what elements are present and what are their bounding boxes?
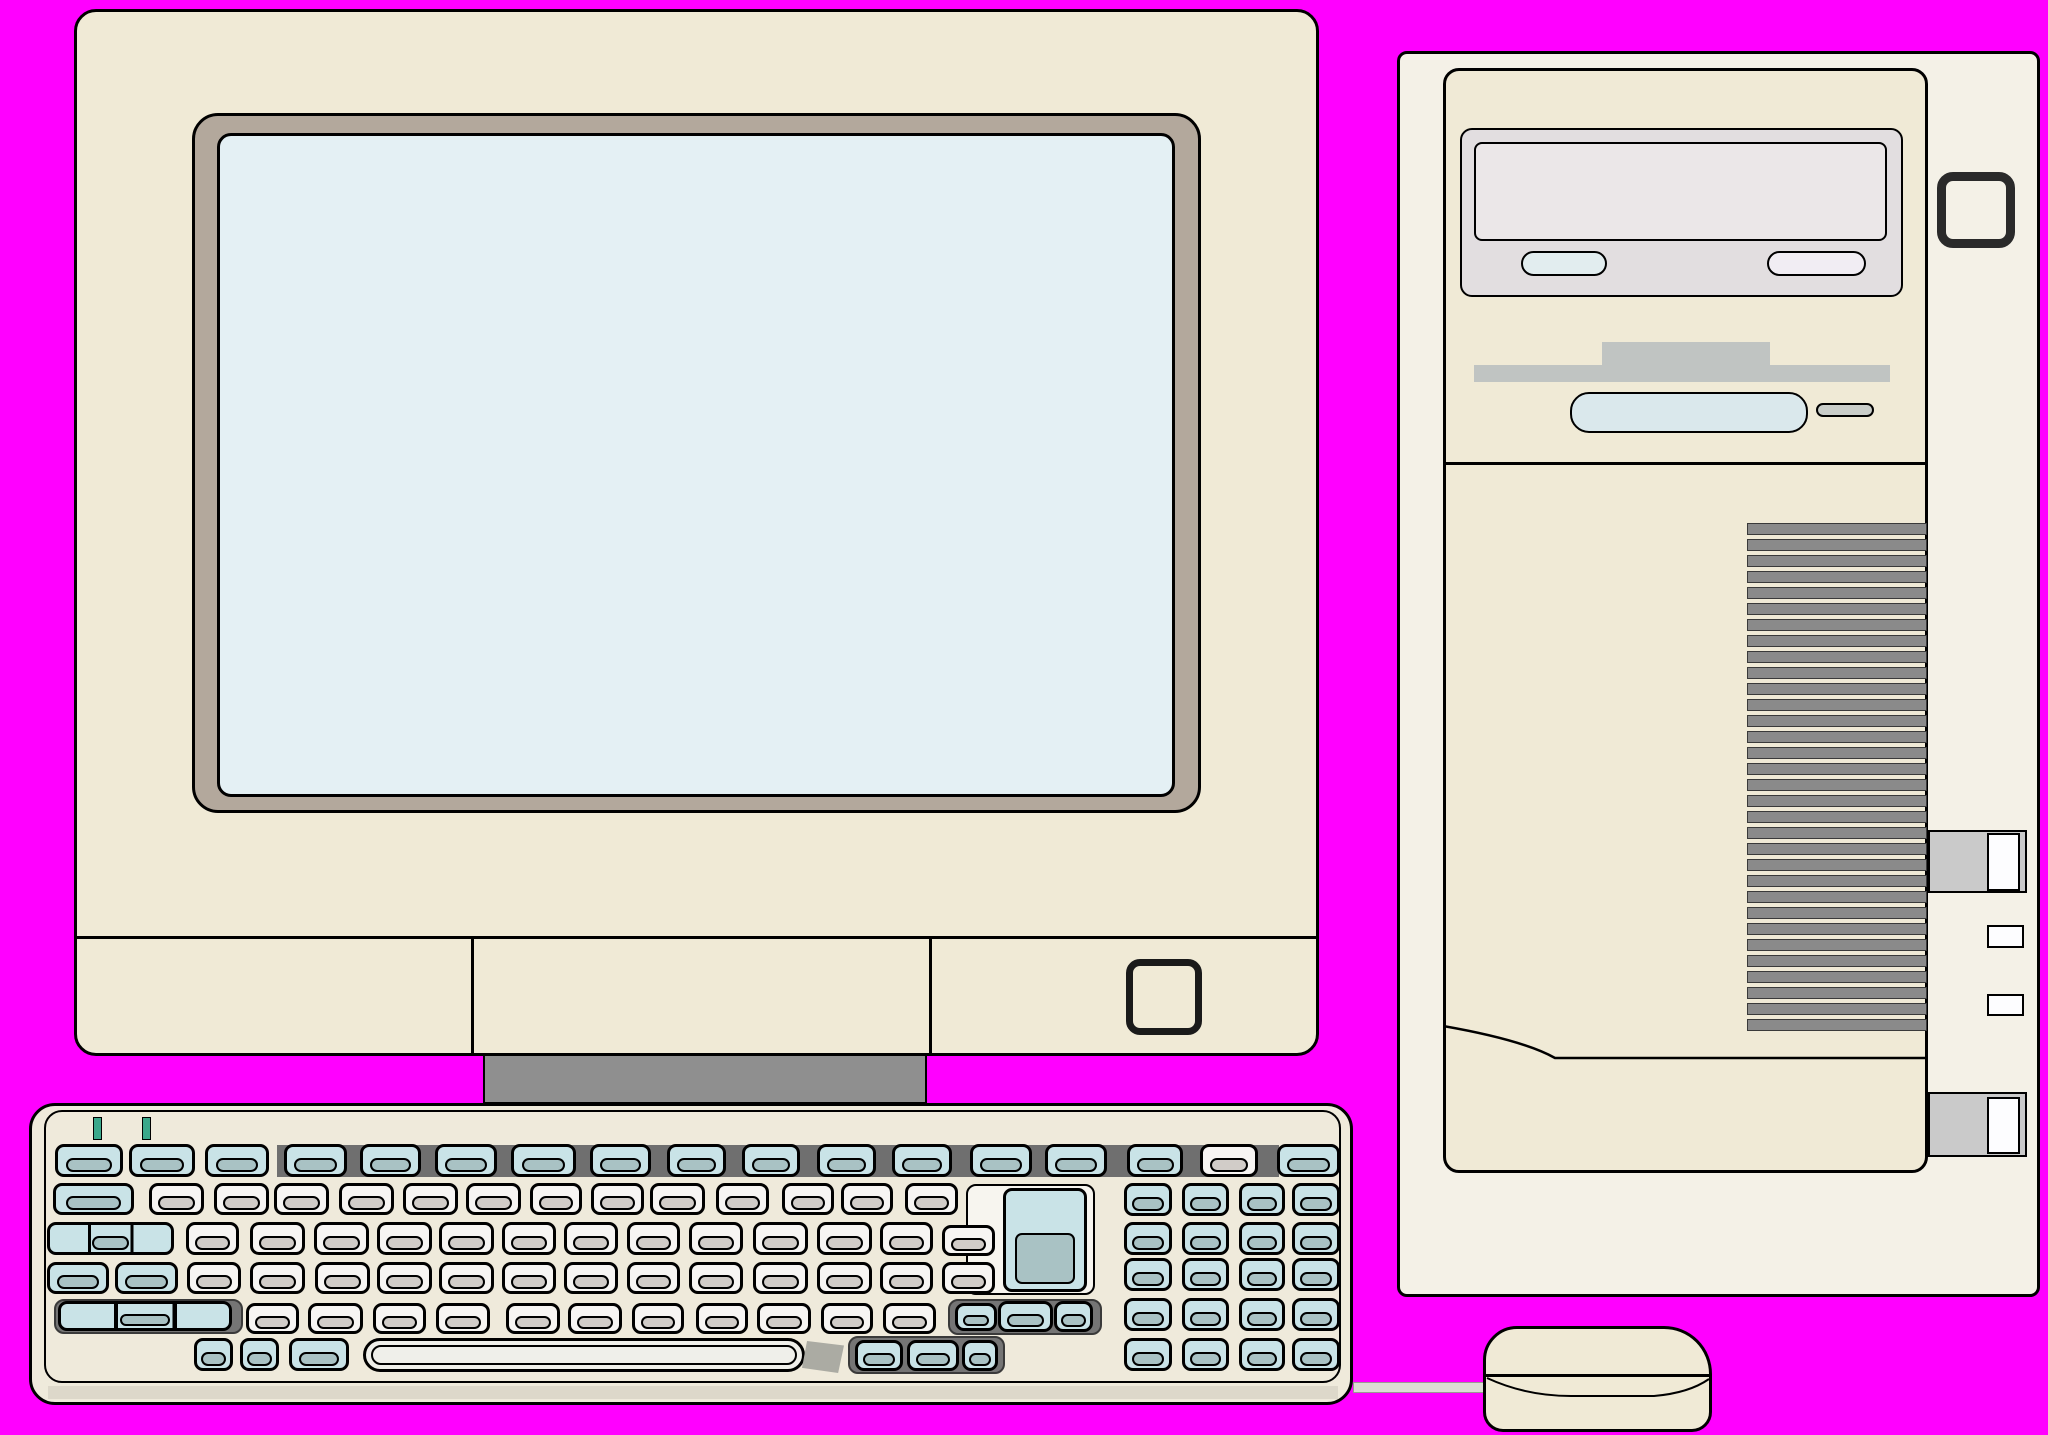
vent-slot [1747,779,1927,791]
keyboard-key[interactable] [782,1183,834,1215]
vent-slot [1747,907,1927,919]
tower-side-port-lower [1987,994,2024,1016]
keyboard-key[interactable] [47,1262,109,1294]
floppy-eject-button[interactable] [1816,403,1874,417]
keyboard-key[interactable] [149,1183,204,1215]
keyboard-key[interactable] [377,1262,432,1294]
keyboard-key[interactable] [194,1338,233,1371]
floppy-slot[interactable] [1570,392,1808,433]
tower-side-switch-upper-slot [1987,833,2020,891]
keyboard-key[interactable] [373,1303,426,1334]
cd-drive-tray[interactable] [1474,142,1887,241]
keyboard-key[interactable] [742,1144,800,1177]
tower-side-switch-lower-slot [1987,1097,2020,1154]
keyboard-key[interactable] [1124,1222,1172,1255]
vent-slot [1747,603,1927,615]
keyboard-key[interactable] [1292,1222,1340,1255]
keyboard-led [142,1117,151,1140]
keyboard-key[interactable] [1182,1298,1229,1331]
keyboard-key[interactable] [250,1222,305,1255]
keyboard-key[interactable] [377,1222,432,1255]
keyboard-key[interactable] [1292,1338,1340,1371]
tower-side-port-upper [1987,925,2024,948]
keyboard-key[interactable] [314,1222,369,1255]
keyboard-key[interactable] [115,1262,178,1294]
keyboard-key[interactable] [1124,1183,1172,1216]
vent-slot [1747,859,1927,871]
keyboard-key[interactable] [315,1262,370,1294]
keyboard-key[interactable] [308,1303,363,1334]
keyboard-key[interactable] [689,1262,743,1294]
vent-slot [1747,843,1927,855]
vent-slot [1747,939,1927,951]
keyboard-key[interactable] [696,1303,748,1334]
cd-eject-button[interactable] [1767,251,1866,276]
keyboard-key[interactable] [1239,1183,1285,1216]
keyboard-key[interactable] [757,1303,811,1334]
vent-slot [1747,651,1927,663]
vent-slot [1747,555,1927,567]
vent-slot [1747,587,1927,599]
vent-slot [1747,827,1927,839]
keyboard-key[interactable] [564,1262,618,1294]
keyboard-key[interactable] [1277,1144,1340,1177]
keyboard-key[interactable] [650,1183,705,1215]
vent-slot [1747,987,1927,999]
keyboard-key[interactable] [1239,1258,1285,1291]
keyboard-key[interactable] [942,1225,995,1256]
keyboard-key[interactable] [970,1144,1032,1177]
keyboard-key[interactable] [880,1262,933,1294]
vent-slot [1747,891,1927,903]
keyboard-key[interactable] [942,1262,995,1294]
mouse-cable [1353,1382,1486,1393]
keyboard-key[interactable] [205,1144,269,1177]
keyboard-key[interactable] [1239,1298,1285,1331]
vent-slot [1747,667,1927,679]
keyboard-key[interactable] [187,1262,241,1294]
keyboard-key[interactable] [1182,1258,1229,1291]
keyboard-key[interactable] [502,1222,556,1255]
keyboard-key[interactable] [1124,1338,1172,1371]
keyboard-key[interactable] [1182,1222,1229,1255]
keyboard-key[interactable] [817,1222,872,1255]
keyboard-key[interactable] [1124,1298,1172,1331]
keyboard-key[interactable] [250,1262,305,1294]
keyboard-key[interactable] [1292,1183,1340,1216]
keyboard-key[interactable] [1182,1338,1229,1371]
vent-slot [1747,619,1927,631]
vent-slot [1747,955,1927,967]
tower-panel-divider [1443,462,1928,465]
keyboard-key[interactable] [435,1144,497,1177]
tower-power-button[interactable] [1937,172,2015,248]
keyboard-key[interactable] [753,1262,808,1294]
keyboard-key[interactable] [360,1144,421,1177]
vent-slot [1747,699,1927,711]
vent-slot [1747,763,1927,775]
keyboard-key[interactable] [274,1183,329,1215]
floppy-drive-housing [1474,365,1890,382]
keyboard-key[interactable] [627,1262,680,1294]
monitor-screen [217,133,1175,797]
keyboard-key[interactable] [590,1144,651,1177]
keyboard-key[interactable] [186,1222,239,1255]
vent-slot [1747,923,1927,935]
keyboard-key[interactable] [632,1303,684,1334]
keyboard-key[interactable] [905,1183,958,1215]
keyboard-key[interactable] [1045,1144,1107,1177]
keyboard-key[interactable] [1124,1258,1172,1291]
cd-play-button[interactable] [1521,251,1607,276]
keyboard-key[interactable] [436,1303,490,1334]
keyboard-key[interactable] [1292,1298,1340,1331]
keyboard-key[interactable] [627,1222,680,1255]
monitor-control-strip-divider [74,936,1319,939]
keyboard-key[interactable] [1127,1144,1183,1177]
floppy-drive-housing-top [1602,342,1770,366]
keyboard-key[interactable] [289,1338,349,1371]
vent-slot [1747,731,1927,743]
keyboard-key[interactable] [998,1301,1053,1332]
vent-slot [1747,715,1927,727]
keyboard-key[interactable] [339,1183,394,1215]
keyboard-key[interactable] [55,1144,123,1177]
vent-slot [1747,523,1927,535]
vent-slot [1747,571,1927,583]
monitor-stand [483,1054,927,1104]
keyboard-key[interactable] [689,1222,743,1255]
keyboard-key[interactable] [47,1222,174,1255]
keyboard-key[interactable] [1054,1301,1093,1332]
scene [0,0,2048,1435]
keyboard-key[interactable] [841,1183,893,1215]
vent-slot [1747,747,1927,759]
keyboard-key[interactable] [214,1183,269,1215]
keyboard-key[interactable] [439,1262,494,1294]
keyboard-key[interactable] [564,1222,618,1255]
keyboard-key[interactable] [129,1144,195,1177]
keyboard-key[interactable] [1182,1183,1229,1216]
keyboard-key[interactable] [817,1262,872,1294]
keyboard-key[interactable] [1292,1258,1340,1291]
keyboard-key[interactable] [502,1262,556,1294]
keyboard-key[interactable] [58,1301,232,1331]
keyboard-key[interactable] [821,1303,873,1334]
keyboard-key[interactable] [53,1183,134,1215]
keyboard-key[interactable] [511,1144,576,1177]
keyboard-key[interactable] [240,1338,279,1371]
keyboard-key[interactable] [439,1222,494,1255]
keyboard-key[interactable] [403,1183,458,1215]
keyboard-key[interactable] [284,1144,347,1177]
keyboard-key[interactable] [907,1340,959,1371]
keyboard-key[interactable] [880,1222,933,1255]
keyboard-key[interactable] [246,1303,299,1334]
keyboard-key[interactable] [1239,1338,1285,1371]
keyboard-key[interactable] [568,1303,622,1334]
monitor-power-button[interactable] [1126,959,1202,1035]
keyboard-key[interactable] [855,1340,903,1371]
keyboard-key[interactable] [892,1144,952,1177]
vent-slot [1747,635,1927,647]
keyboard-key[interactable] [667,1144,726,1177]
keyboard-key[interactable] [1003,1188,1087,1292]
vent-slot [1747,971,1927,983]
keyboard-key[interactable] [817,1144,876,1177]
keyboard-key[interactable] [883,1303,936,1334]
keyboard-key[interactable] [1200,1144,1258,1177]
keyboard-key[interactable] [506,1303,560,1334]
keyboard-led [93,1117,102,1140]
spacebar-key[interactable] [363,1338,805,1372]
spacebar-end-wedge [802,1341,844,1373]
keyboard-key[interactable] [1239,1222,1285,1255]
keyboard-key[interactable] [466,1183,521,1215]
vent-slot [1747,539,1927,551]
vent-slot [1747,683,1927,695]
vent-slot [1747,811,1927,823]
keyboard-key[interactable] [962,1340,998,1371]
vent-slot [1747,875,1927,887]
keyboard-key[interactable] [716,1183,769,1215]
tower-panel-curve [1443,1012,1929,1082]
keyboard-front-lip [48,1386,1338,1399]
keyboard-key[interactable] [955,1303,997,1331]
mouse-palm-curve [1486,1376,1712,1402]
keyboard-key[interactable] [530,1183,582,1215]
keyboard-key[interactable] [753,1222,808,1255]
mouse-body[interactable] [1483,1326,1712,1432]
vent-slot [1747,795,1927,807]
keyboard-key[interactable] [591,1183,644,1215]
monitor-control-strip-seam-left [471,936,474,1056]
monitor-control-strip-seam-right [929,936,932,1056]
